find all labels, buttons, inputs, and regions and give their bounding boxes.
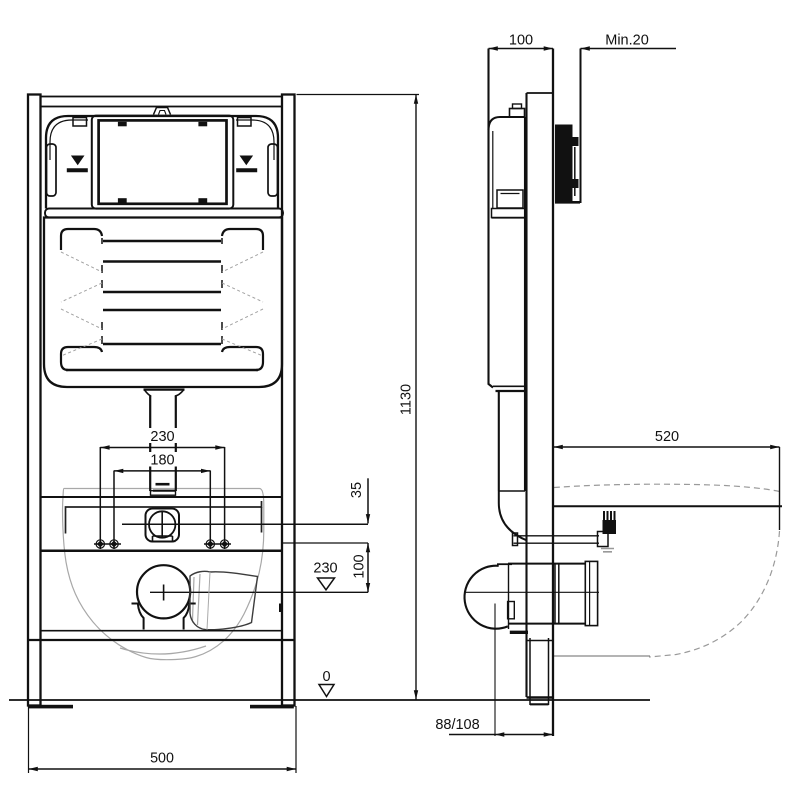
svg-text:100: 100 [352,554,368,578]
svg-text:1130: 1130 [399,384,415,415]
svg-text:Min.20: Min.20 [605,33,649,49]
svg-text:230: 230 [313,561,337,577]
svg-text:500: 500 [150,751,174,767]
svg-text:0: 0 [322,669,330,685]
svg-text:35: 35 [349,482,365,498]
svg-text:88/108: 88/108 [435,717,479,733]
svg-text:230: 230 [150,429,174,445]
svg-text:520: 520 [655,429,679,445]
svg-text:100: 100 [509,33,533,49]
svg-text:180: 180 [150,453,174,469]
